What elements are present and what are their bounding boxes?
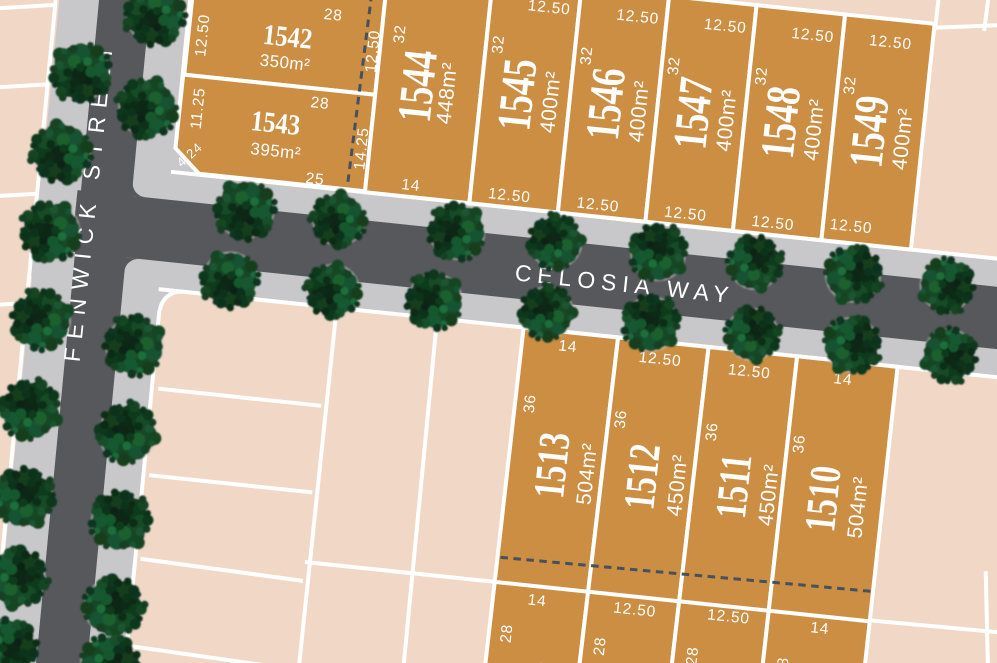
svg-text:1542: 1542 xyxy=(262,18,314,55)
svg-text:32: 32 xyxy=(752,66,771,87)
svg-text:1543: 1543 xyxy=(249,104,301,141)
svg-text:14: 14 xyxy=(558,337,579,356)
svg-text:36: 36 xyxy=(612,409,631,430)
svg-text:28: 28 xyxy=(683,646,702,663)
svg-text:36: 36 xyxy=(521,393,540,414)
svg-text:32: 32 xyxy=(665,56,684,77)
svg-text:28: 28 xyxy=(310,94,331,113)
svg-text:1513: 1513 xyxy=(525,430,580,501)
svg-text:1510: 1510 xyxy=(796,463,851,534)
svg-text:32: 32 xyxy=(841,75,860,96)
svg-text:28: 28 xyxy=(591,636,610,657)
svg-text:36: 36 xyxy=(703,422,722,443)
svg-text:14: 14 xyxy=(810,619,831,638)
svg-text:28: 28 xyxy=(323,6,344,25)
svg-text:32: 32 xyxy=(577,45,596,66)
svg-text:28: 28 xyxy=(498,623,517,644)
svg-text:32: 32 xyxy=(391,24,410,45)
svg-text:1512: 1512 xyxy=(615,441,670,512)
svg-text:1511: 1511 xyxy=(706,452,761,521)
svg-text:32: 32 xyxy=(489,34,508,55)
svg-text:36: 36 xyxy=(790,434,809,455)
svg-text:14: 14 xyxy=(401,176,422,195)
svg-text:14: 14 xyxy=(527,591,548,610)
svg-text:25: 25 xyxy=(305,170,326,189)
